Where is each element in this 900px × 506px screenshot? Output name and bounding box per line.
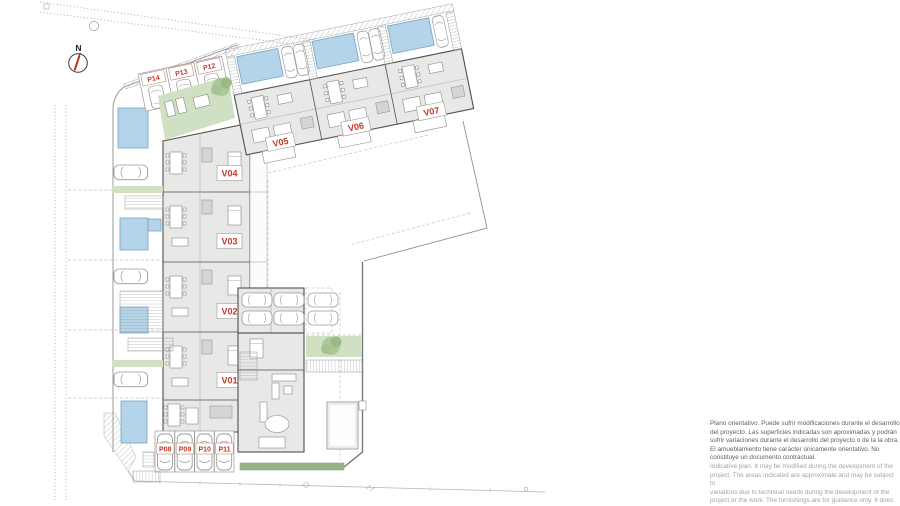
- dining-table: [259, 437, 285, 448]
- coffee-table: [284, 386, 292, 394]
- disclaimer-en-line: project or the work. The furnishings are…: [710, 497, 900, 506]
- svg-text:V04: V04: [221, 169, 237, 179]
- parking-label-p10: P10: [196, 443, 214, 454]
- pool: [118, 108, 148, 148]
- car-icon: [308, 293, 338, 307]
- stairs: [125, 196, 163, 209]
- car-icon: [242, 293, 272, 307]
- car-icon: [308, 311, 338, 325]
- road-top: [40, 2, 315, 46]
- svg-text:V03: V03: [221, 237, 237, 247]
- north-compass: N: [69, 43, 88, 72]
- disclaimer-en-line: Indicative plan. It may be modified duri…: [710, 463, 900, 472]
- car-icon: [432, 15, 450, 48]
- manhole-icon: [89, 21, 98, 30]
- utility-mark: [44, 4, 49, 9]
- car-icon: [274, 293, 304, 307]
- sofa: [272, 374, 296, 381]
- disclaimer-es-line: sufrir variaciones durante el desarrollo…: [710, 437, 900, 446]
- walkway: [306, 360, 362, 372]
- common-house: [238, 288, 366, 470]
- parking-label-p11: P11: [216, 443, 234, 454]
- disclaimer-es-line: El amueblamiento tiene carácter únicamen…: [710, 446, 900, 455]
- villa-label-v03: V03: [217, 234, 242, 249]
- parking-label-p09: P09: [176, 443, 194, 454]
- stairs: [128, 338, 173, 351]
- svg-text:P11: P11: [218, 447, 230, 454]
- car-icon: [114, 372, 148, 387]
- gate: [359, 401, 366, 410]
- disclaimer-en-line: project. The areas indicated are approxi…: [710, 472, 900, 489]
- stairs: [446, 12, 461, 51]
- svg-text:P10: P10: [198, 447, 211, 454]
- pool: [237, 48, 284, 84]
- dining-table: [265, 416, 289, 433]
- house-building: [238, 333, 304, 452]
- stairs: [240, 352, 257, 380]
- lawn-strip: [112, 360, 163, 367]
- pool: [120, 218, 148, 250]
- svg-text:V02: V02: [221, 307, 237, 317]
- villa-label-v04: V04: [217, 166, 242, 181]
- svg-text:P08: P08: [159, 447, 172, 454]
- pool: [388, 18, 435, 54]
- road-left: [55, 105, 66, 500]
- disclaimer-es-line: del proyecto. Las superficies indicadas …: [710, 429, 900, 438]
- manhole-icon: [524, 487, 528, 491]
- stairs: [143, 452, 154, 467]
- empty-pool: [327, 402, 358, 449]
- kitchen-island: [260, 402, 267, 422]
- crosswalk: [133, 471, 160, 482]
- sofa: [272, 383, 279, 399]
- car-icon: [114, 269, 148, 284]
- compass-label: N: [75, 43, 81, 53]
- svg-text:V01: V01: [221, 376, 237, 386]
- car-icon: [274, 311, 304, 325]
- manhole-icon: [304, 483, 309, 488]
- lawn-strip: [112, 186, 163, 193]
- disclaimer: Plano orientativo. Puede sufrir modifica…: [710, 420, 900, 506]
- parking-block-top: P14 P13 P12: [138, 56, 235, 140]
- pool: [148, 219, 161, 231]
- parking-block-bottom: P08 P09 P10 P11: [133, 431, 234, 482]
- utility-mark: [366, 485, 375, 491]
- svg-text:P09: P09: [179, 447, 192, 454]
- car-icon: [114, 165, 148, 180]
- hedge: [240, 463, 344, 470]
- parking-label-p08: P08: [157, 443, 175, 454]
- pool: [121, 401, 147, 443]
- disclaimer-es-line: Plano orientativo. Puede sufrir modifica…: [710, 420, 900, 429]
- pool: [312, 33, 359, 69]
- disclaimer-en-line: variations due to technical needs during…: [710, 489, 900, 498]
- disclaimer-es-line: constituye un documento contractual.: [710, 454, 900, 463]
- road-bottom: [135, 480, 545, 492]
- top-wing: V05 V06 V07: [225, 4, 476, 167]
- car-icon: [242, 311, 272, 325]
- stairs: [120, 291, 163, 332]
